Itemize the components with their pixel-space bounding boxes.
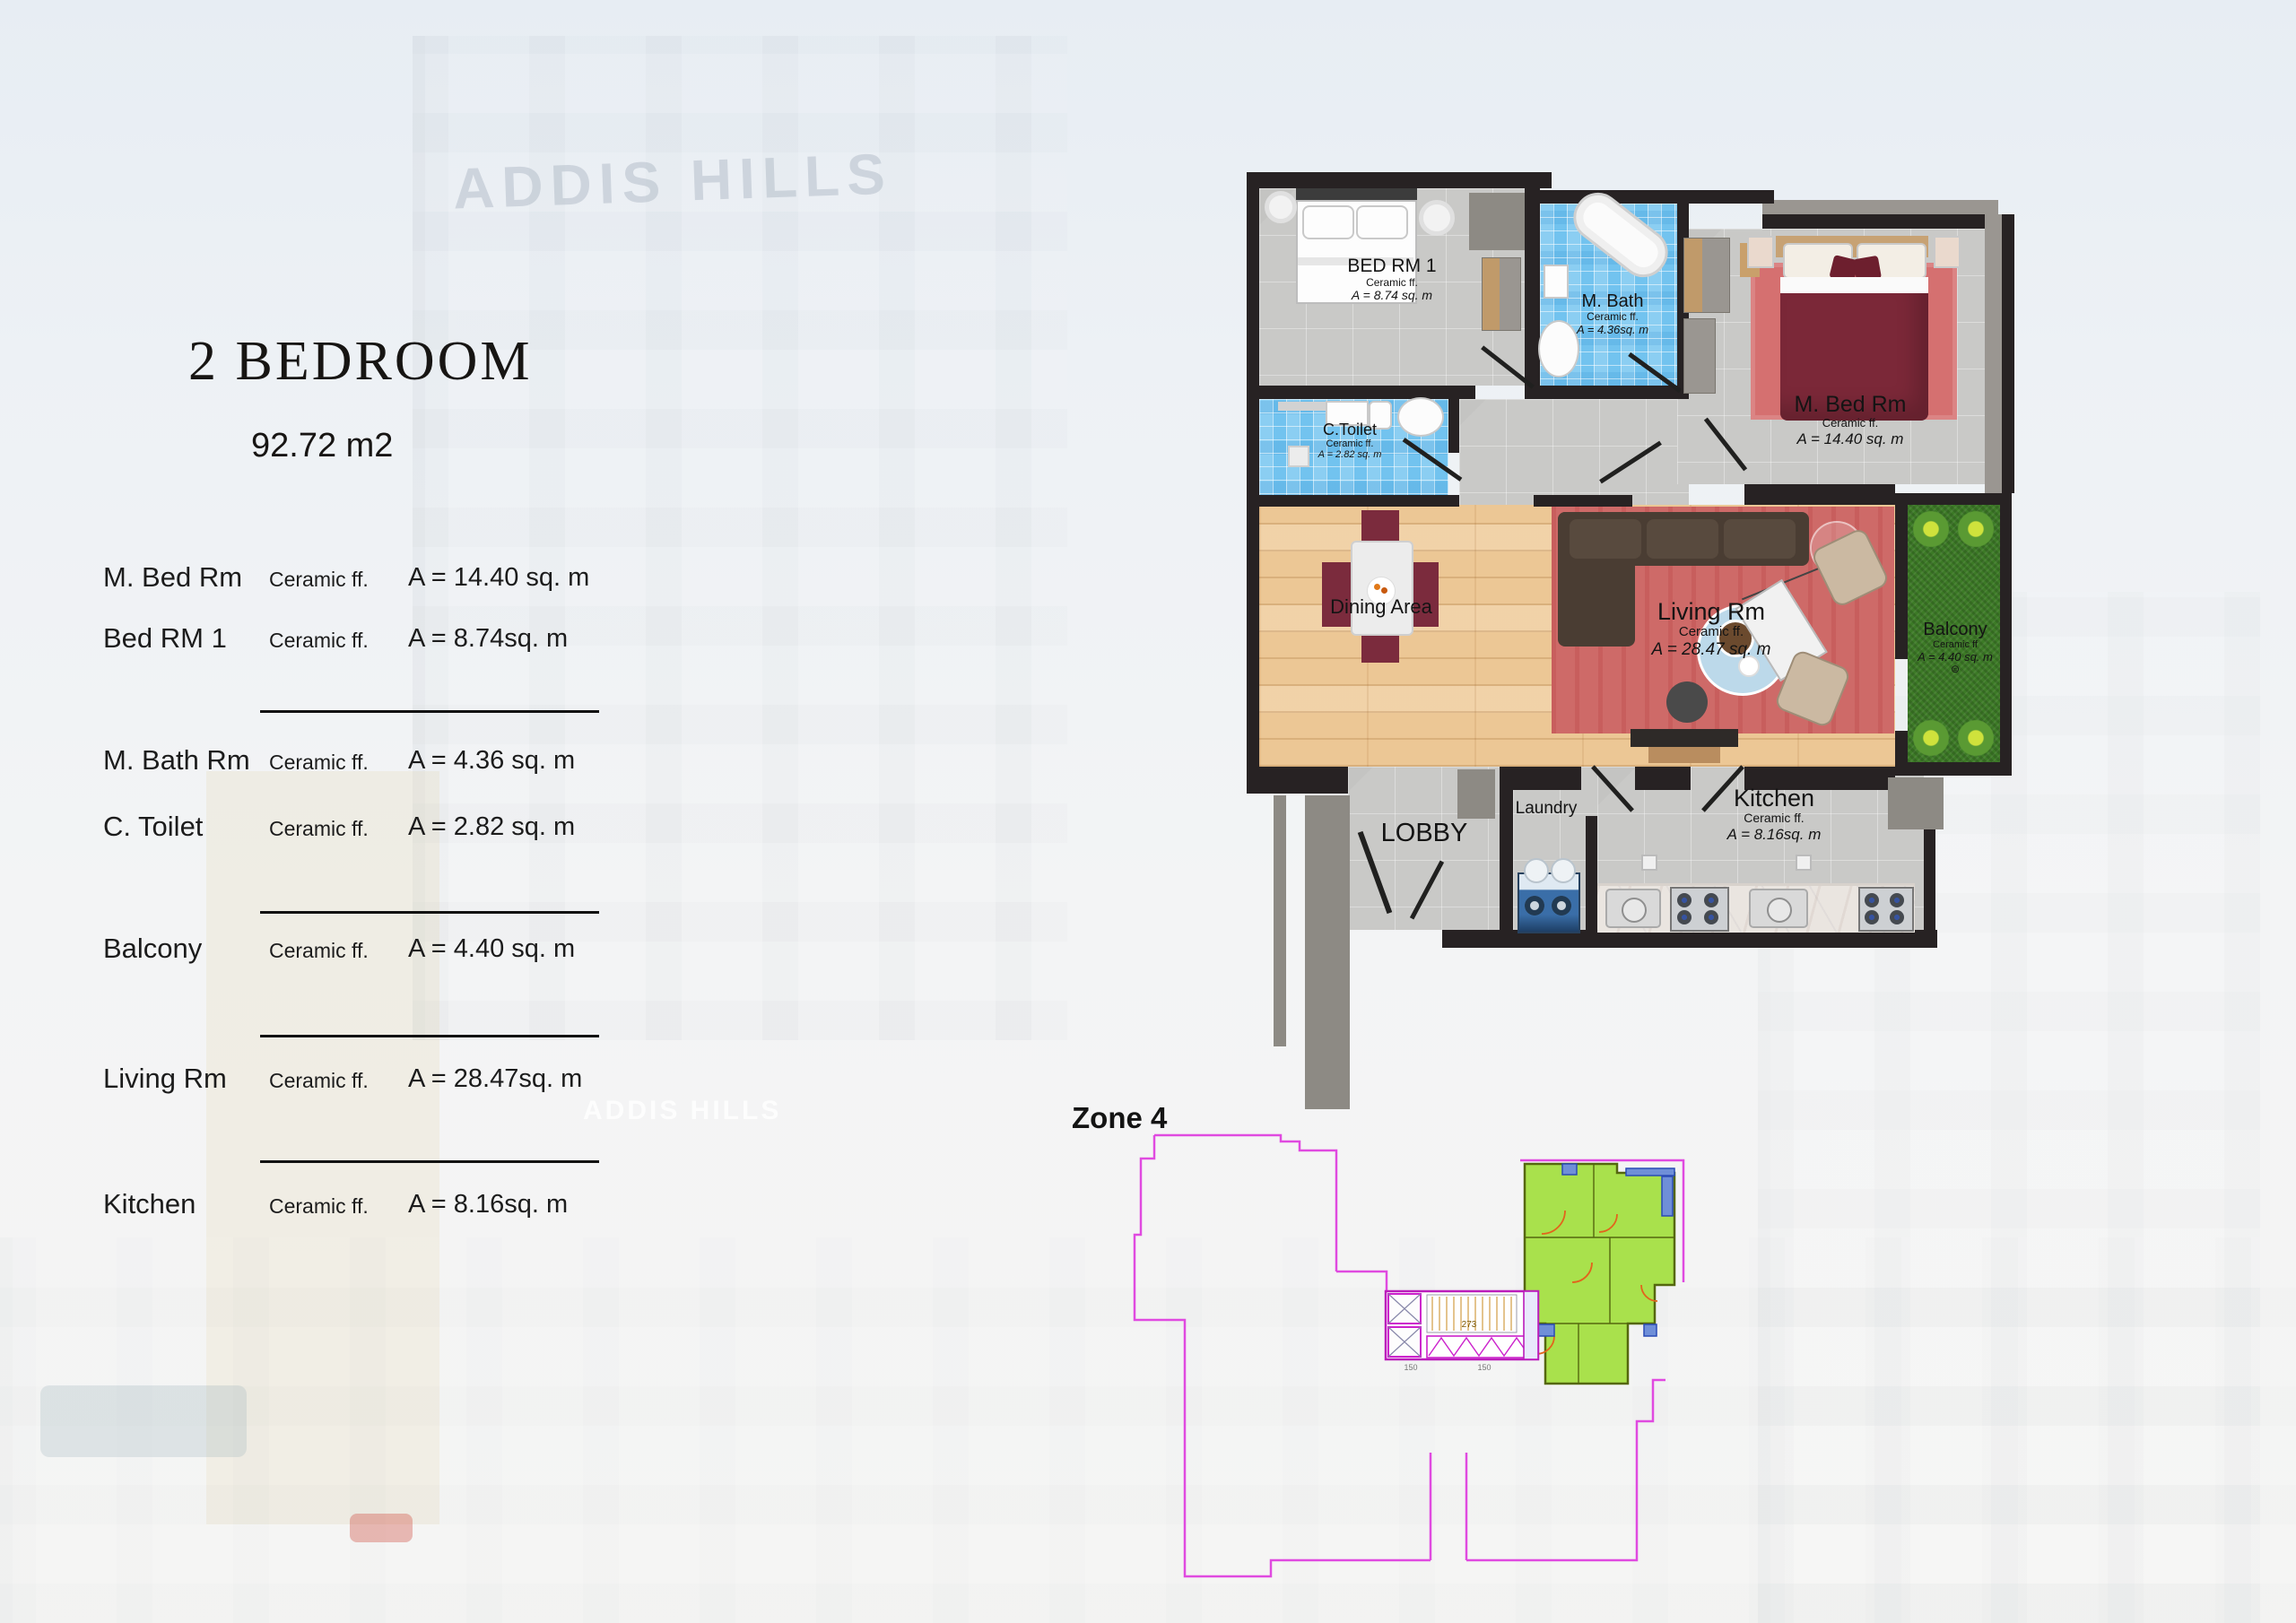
lobby-closet-block [1457,769,1495,819]
divider-line [260,1035,599,1037]
wall-segment [2002,214,2014,493]
room-area: A = 2.82 sq. m [408,812,575,842]
wall-segment [1586,816,1597,930]
room-area: A = 14.40 sq. m [1794,430,1906,447]
core-dim: 273 [1462,1320,1477,1330]
room-name: C.Toilet [1318,421,1382,438]
room-area: A = 2.82 sq. m [1318,449,1382,460]
room-name: BED RM 1 [1347,256,1436,277]
wall-segment [1442,930,1937,948]
room-label-balcony: Balcony Ceramic ff A = 4.40 sq. m ⊜ [1918,620,1993,676]
room-area: A = 8.16sq. m [1727,826,1822,843]
fruit-icon [1374,584,1380,590]
wall-segment [2000,493,2012,776]
wall-segment [1247,767,1348,794]
wall-segment [1689,190,1774,204]
room-name: Kitchen [103,1188,196,1220]
background-bus [40,1385,247,1457]
wall-segment [1247,386,1475,399]
room-area: A = 8.74 sq. m [1347,289,1436,303]
room-label-c-toilet: C.Toilet Ceramic ff. A = 2.82 sq. m [1318,421,1382,461]
room-name: M. Bath [1577,291,1648,311]
sconce-icon [1265,191,1297,223]
hallway-floor [1459,399,1689,507]
outlet-icon [1641,855,1657,871]
room-name: Balcony [103,933,202,965]
washer-drum-icon [1525,896,1544,916]
outlet-icon [1796,855,1812,871]
floorplan-sheet: ADDIS HILLS ADDIS HILLS 2 BEDROOM 92.72 … [0,0,2296,1623]
wall-segment [1247,495,1459,507]
gray-block [1888,777,1944,829]
room-name: Living Rm [103,1063,227,1095]
room-finish: Ceramic ff. [1318,438,1382,449]
spec-panel: 2 BEDROOM 92.72 m2 M. Bed Rm Ceramic ff.… [103,330,659,1254]
stove-icon [1858,887,1914,932]
room-finish: Ceramic ff. [269,939,369,963]
zone-core: 273 150 150 [1386,1291,1538,1372]
spec-row-balcony: Balcony Ceramic ff. A = 4.40 sq. m [103,933,641,976]
pillow-icon [1356,205,1408,239]
room-name: Kitchen [1727,785,1822,811]
kitchen-sink-icon [1605,889,1661,928]
washer-lid-icon [1524,858,1549,883]
tv-icon [1631,729,1738,747]
room-label-bed-rm-1: BED RM 1 Ceramic ff. A = 8.74 sq. m [1347,256,1436,303]
wall-segment [1247,172,1259,767]
pouf-icon [1666,681,1708,723]
plant-icon [1911,718,1951,758]
sofa-cushion [1570,519,1641,559]
room-area: A = 8.16sq. m [408,1190,568,1219]
wall-segment [1762,214,1998,229]
sink-basin-icon [1622,898,1647,923]
room-name: Laundry [1516,799,1578,818]
kitchen-sink-icon [1749,889,1808,928]
bed-sheet [1780,277,1928,293]
room-finish: Ceramic ff. [269,751,369,775]
wall-segment [1895,505,1908,659]
room-area: A = 4.36 sq. m [408,746,575,776]
concrete-strip [1762,200,1998,214]
room-finish: Ceramic ff. [1577,311,1648,323]
room-name: Dining Area [1330,596,1432,619]
room-name: C. Toilet [103,811,203,843]
wall-segment [1525,172,1540,399]
wall-segment [1895,493,2012,505]
plant-icon [1956,509,1996,549]
room-finish: Ceramic ff. [269,817,369,841]
pillow-icon [1302,205,1354,239]
room-finish: Ceramic ff. [269,1194,369,1219]
room-label-living: Living Rm Ceramic ff. A = 28.47 sq. m [1652,598,1771,659]
dining-chair-icon [1361,510,1399,541]
wall-segment [1895,731,1908,762]
bath-sink-icon [1538,320,1579,378]
room-area: A = 4.40 sq. m [1918,651,1993,664]
sofa-cushion [1724,519,1796,559]
room-label-m-bath: M. Bath Ceramic ff. A = 4.36sq. m [1577,291,1648,336]
background-car [350,1514,413,1542]
wall-segment [1513,767,1581,790]
room-finish: Ceramic ff [1918,639,1993,650]
room-area: A = 4.36sq. m [1577,324,1648,337]
room-name: Balcony [1918,620,1993,639]
spec-row-m-bed-rm: M. Bed Rm Ceramic ff. A = 14.40 sq. m [103,561,641,604]
apartment-floor-plan: BED RM 1 Ceramic ff. A = 8.74 sq. m M. B… [1247,157,2014,1116]
room-name: M. Bath Rm [103,744,250,777]
room-finish: Ceramic ff. [1727,811,1822,826]
wall-segment [1895,762,2012,776]
room-finish: Ceramic ff. [269,1069,369,1093]
wall-segment [1635,767,1691,790]
room-area: A = 8.74sq. m [408,624,568,654]
sofa-cushion [1647,519,1718,559]
stove-icon [1670,887,1729,932]
room-label-dining: Dining Area [1330,596,1432,619]
corridor-strip-wide [1305,795,1350,1109]
room-area: A = 14.40 sq. m [408,563,589,593]
washer-lid-icon [1551,858,1576,883]
divider-line [260,710,599,713]
room-finish: Ceramic ff. [269,629,369,653]
floor-drain-icon [1288,446,1309,467]
page-subtitle: 92.72 m2 [251,427,393,465]
page-title: 2 BEDROOM [188,330,533,394]
washing-machines-icon [1518,872,1580,933]
bath-vanity [1544,265,1569,299]
room-label-laundry: Laundry [1516,799,1578,818]
plant-icon [1911,509,1951,549]
room-finish: Ceramic ff. [1652,625,1771,640]
core-dim: 150 [1404,1363,1417,1372]
wall-segment [1527,386,1689,399]
zone-highlighted-unit [1525,1164,1674,1384]
wall-segment [1500,767,1513,930]
wardrobe-icon [1683,238,1730,313]
room-name: Bed RM 1 [103,622,227,655]
zone-key-plan: 273 150 150 [1126,1128,1700,1612]
room-area: A = 28.47 sq. m [1652,640,1771,659]
drain-icon: ⊜ [1918,664,1993,675]
bed-headboard [1296,188,1417,200]
wall-segment [1744,484,1895,505]
sink-basin-icon [1767,898,1792,923]
room-name: M. Bed Rm [103,561,242,594]
room-label-lobby: LOBBY [1381,819,1468,847]
tv-stand [1648,747,1720,763]
spec-row-m-bath: M. Bath Rm Ceramic ff. A = 4.36 sq. m [103,744,641,787]
room-name: M. Bed Rm [1794,392,1906,417]
wall-segment [1924,816,1935,948]
core-dim: 150 [1477,1363,1491,1372]
spec-row-c-toilet: C. Toilet Ceramic ff. A = 2.82 sq. m [103,811,641,854]
divider-line [260,1160,599,1163]
corridor-strip [1274,795,1286,1046]
room-area: A = 28.47sq. m [408,1064,582,1094]
spec-row-bed-rm-1: Bed RM 1 Ceramic ff. A = 8.74sq. m [103,622,641,665]
room-name: Living Rm [1652,598,1771,625]
room-finish: Ceramic ff. [1794,417,1906,430]
fruit-icon [1381,587,1387,594]
closet-block [1469,193,1525,250]
washer-drum-icon [1552,896,1571,916]
wardrobe-icon [1482,257,1521,331]
room-label-m-bed-rm: M. Bed Rm Ceramic ff. A = 14.40 sq. m [1794,392,1906,447]
divider-line [260,911,599,914]
nightstand-icon [1934,236,1961,268]
sconce-icon [1419,200,1455,236]
wardrobe-icon [1683,318,1716,394]
room-label-kitchen: Kitchen Ceramic ff. A = 8.16sq. m [1727,785,1822,843]
room-finish: Ceramic ff. [1347,277,1436,289]
dining-chair-icon [1361,632,1399,663]
wall-segment [1534,495,1632,507]
room-area: A = 4.40 sq. m [408,934,575,964]
wall-segment [1247,172,1552,188]
room-finish: Ceramic ff. [269,568,369,592]
plant-icon [1956,718,1996,758]
concrete-strip [1985,214,2002,493]
spec-row-living: Living Rm Ceramic ff. A = 28.47sq. m [103,1063,641,1106]
wall-segment [1448,399,1459,453]
room-name: LOBBY [1381,819,1468,847]
toilet-sink-icon [1397,397,1444,437]
nightstand-icon [1747,236,1774,268]
spec-row-kitchen: Kitchen Ceramic ff. A = 8.16sq. m [103,1188,641,1231]
